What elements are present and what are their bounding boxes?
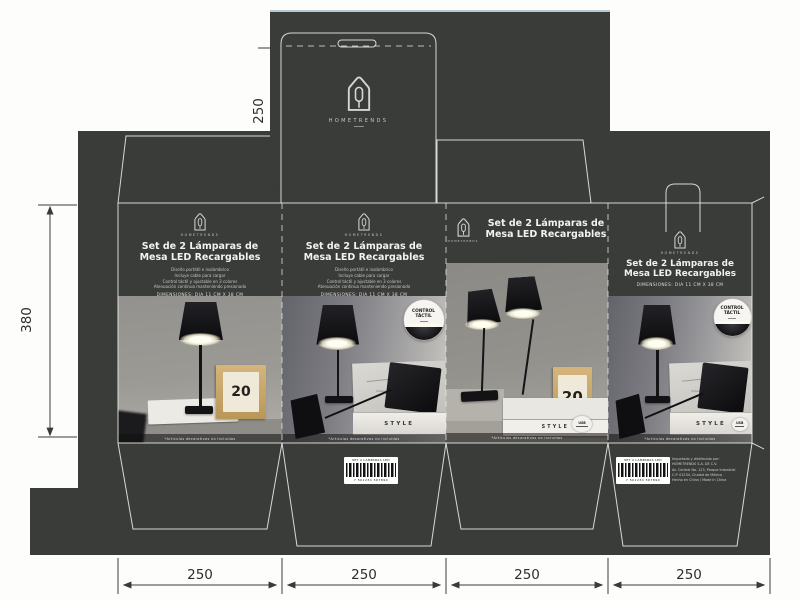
badge-lamp-shade (714, 324, 751, 336)
panel-face-2: HOMETRENDS Set de 2 Lámparas de Mesa LED… (282, 203, 446, 443)
control-tactil-badge: CONTROL TÁCTIL (404, 300, 444, 340)
lamp-base (645, 396, 669, 403)
product-dimensions-text: DIMENSIONES: DIA 11 CM X 38 CM (637, 283, 724, 288)
dim-left-380: 380 (19, 307, 35, 333)
panel-title: Set de 2 Lámparas de Mesa LED Recargable… (140, 241, 261, 263)
product-photo-lifestyle: 20 STYLE USB *Artículos decorativos no i… (446, 263, 608, 443)
calendar-day: 20 (223, 372, 259, 412)
lamp-stem (522, 319, 535, 394)
lid-flap-branding: HOMETRENDS (281, 70, 436, 127)
barcode-bars (346, 463, 396, 477)
barcode-label: SET 2 LÁMPARAS LED 7 501234 567890 (344, 457, 398, 484)
dim-bottom-250-3: 250 (507, 567, 547, 583)
hometrends-house-icon (356, 210, 372, 231)
brand-wordmark: HOMETRENDS (448, 239, 479, 243)
brand-wordmark: HOMETRENDS (661, 251, 700, 255)
hometrends-house-icon (455, 215, 472, 237)
barcode-text: SET 2 LÁMPARAS LED (352, 459, 390, 463)
feature-list: Diseño portátil e inalámbrico Incluye ca… (154, 267, 246, 289)
panel-title: Set de 2 Lámparas de Mesa LED Recargable… (304, 241, 425, 263)
title-line-2: Mesa LED Recargables (140, 252, 261, 263)
lamp-glow (640, 337, 673, 350)
panel-title: Set de 2 Lámparas de Mesa LED Recargable… (486, 218, 607, 240)
style-book-spine: STYLE (353, 412, 446, 435)
barcode-label: SET 2 LÁMPARAS LED 7 501234 567890 (616, 457, 670, 484)
dim-bottom-250-4: 250 (669, 567, 709, 583)
product-photo-two-lamps: STYLE CONTROL TÁCTIL *Artículos decorati… (282, 296, 446, 443)
dim-bottom-250-1: 250 (180, 567, 220, 583)
panel-title: Set de 2 Lámparas de Mesa LED Recargable… (624, 259, 736, 280)
product-photo-two-lamps: STYLE CONTROL TÁCTIL USB *Artículos deco… (608, 296, 752, 443)
style-book-title: STYLE (542, 425, 570, 430)
badge-divider (420, 321, 428, 322)
panel2-header: HOMETRENDS Set de 2 Lámparas de Mesa LED… (282, 203, 446, 298)
title-line-2: Mesa LED Recargables (304, 252, 425, 263)
photo-caption: *Artículos decorativos no incluidos (118, 434, 282, 443)
brand-wordmark: HOMETRENDS (345, 233, 384, 237)
sheet-bottom-left-tab (30, 488, 80, 555)
certification-badge: USB (572, 416, 591, 432)
importer-info-text: Importado y distribuido por: HOMETRENDS … (672, 457, 752, 483)
photo-caption: *Artículos decorativos no incluidos (446, 433, 608, 443)
feature-line: Atenuación continua manteniendo presiona… (154, 284, 246, 290)
brand-wordmark: HOMETRENDS (181, 233, 220, 237)
badge-lamp-shade (404, 327, 444, 340)
style-book-title: STYLE (696, 421, 726, 427)
dim-bottom-250-2: 250 (344, 567, 384, 583)
badge-text: CONTROL TÁCTIL (714, 299, 751, 321)
badge-divider (728, 318, 736, 319)
hometrends-house-icon (343, 70, 375, 112)
panel-face-4: HOMETRENDS Set de 2 Lámparas de Mesa LED… (608, 203, 752, 443)
panel4-header: HOMETRENDS Set de 2 Lámparas de Mesa LED… (608, 203, 752, 288)
feature-list: Diseño portátil e inalámbrico Incluye ca… (318, 267, 410, 289)
panel3-logo-block: HOMETRENDS (448, 215, 479, 243)
wood-calendar-prop: 20 (216, 365, 265, 419)
photo-caption: *Artículos decorativos no incluidos (282, 434, 446, 443)
certification-badge: USB (732, 418, 748, 431)
panel-face-1: HOMETRENDS Set de 2 Lámparas de Mesa LED… (118, 203, 282, 443)
barcode-text: SET 2 LÁMPARAS LED (624, 459, 662, 463)
lamp-base (460, 390, 498, 402)
cert-label: USB (736, 422, 743, 425)
cert-label: USB (578, 422, 585, 425)
panel-face-3: HOMETRENDS Set de 2 Lámparas de Mesa LED… (446, 203, 608, 443)
lamp-stem (199, 345, 201, 408)
photo-caption: *Artículos decorativos no incluidos (608, 434, 752, 443)
style-book-stack: STYLE (503, 398, 608, 436)
brand-underline (354, 126, 364, 127)
lying-lamp-base (698, 362, 749, 413)
panel3-header: HOMETRENDS Set de 2 Lámparas de Mesa LED… (446, 203, 608, 243)
lamp-stem (480, 328, 485, 393)
product-photo-single-lamp: 20 *Artículos decorativos no incluidos (118, 296, 282, 443)
cert-line (576, 426, 588, 427)
title-line-1: Set de 2 Lámparas de (486, 218, 607, 229)
style-book-title: STYLE (384, 421, 414, 427)
importer-line: Hecho en China / Made in China (672, 478, 752, 483)
lamp-glow (318, 337, 356, 350)
feature-line: Atenuación continua manteniendo presiona… (318, 284, 410, 290)
hometrends-house-icon (672, 228, 688, 249)
barcode-digits: 7 501234 567890 (354, 478, 388, 482)
title-line-2: Mesa LED Recargables (624, 269, 736, 279)
cert-line (735, 426, 744, 427)
lamp-base (325, 396, 353, 403)
title-line-1: Set de 2 Lámparas de (140, 241, 261, 252)
lamp-glow (506, 308, 540, 319)
badge-text: CONTROL TÁCTIL (404, 300, 444, 324)
lamp-stem (656, 350, 658, 396)
title-line-2: Mesa LED Recargables (486, 229, 607, 240)
badge-line-2: TÁCTIL (415, 314, 431, 319)
hometrends-house-icon (192, 210, 208, 231)
lamp-base (185, 406, 213, 413)
dim-top-250: 250 (251, 98, 267, 124)
barcode-bars (618, 463, 668, 477)
barcode-digits: 7 501234 567890 (626, 478, 660, 482)
brand-wordmark: HOMETRENDS (329, 118, 389, 124)
control-tactil-badge: CONTROL TÁCTIL (714, 299, 751, 336)
title-line-1: Set de 2 Lámparas de (624, 259, 736, 269)
lamp-stem (337, 350, 339, 396)
lying-lamp-base (384, 362, 442, 414)
dieline-canvas: HOMETRENDS HOMETRENDS Set de 2 Lámparas … (0, 0, 800, 600)
badge-line-2: TÁCTIL (724, 311, 740, 316)
panel1-header: HOMETRENDS Set de 2 Lámparas de Mesa LED… (118, 203, 282, 298)
title-line-1: Set de 2 Lámparas de (304, 241, 425, 252)
